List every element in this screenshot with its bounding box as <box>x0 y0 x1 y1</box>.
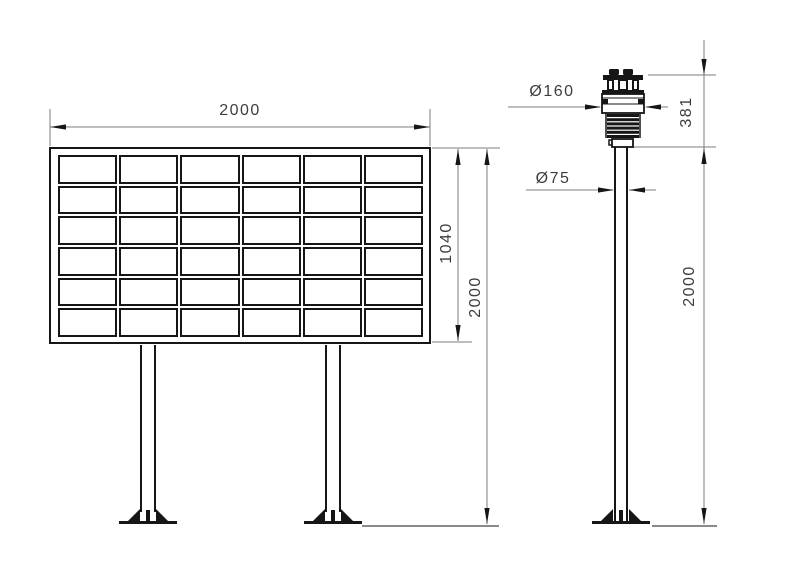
base-gusset <box>629 509 641 521</box>
panel-cell <box>303 247 362 276</box>
panel-cell <box>58 247 117 276</box>
panel-cell <box>58 308 117 337</box>
panel-cell <box>303 216 362 245</box>
panel-cell <box>303 308 362 337</box>
panel-cell <box>364 155 423 184</box>
panel-cell <box>242 186 301 215</box>
panel-grid <box>58 155 423 337</box>
panel-cell <box>364 186 423 215</box>
panel-cell <box>180 186 239 215</box>
base-gusset <box>341 509 353 521</box>
panel-cell <box>180 308 239 337</box>
panel-cell <box>180 216 239 245</box>
panel-cell <box>119 308 178 337</box>
panel-cell <box>119 155 178 184</box>
panel-cell <box>364 247 423 276</box>
weather-sensor <box>602 69 644 147</box>
dim-sensor-diameter: Ø160 <box>529 83 574 101</box>
base-gusset <box>313 509 325 521</box>
panel-cell <box>58 155 117 184</box>
panel-cell <box>303 186 362 215</box>
panel-cell <box>364 216 423 245</box>
panel-cell <box>242 216 301 245</box>
dim-screen-height: 1040 <box>438 222 456 264</box>
base-stub <box>331 510 335 522</box>
panel-cell <box>119 247 178 276</box>
panel-cell <box>58 216 117 245</box>
panel-cell <box>180 247 239 276</box>
panel-cell <box>242 247 301 276</box>
panel-cell <box>303 278 362 307</box>
base-gusset <box>156 509 168 521</box>
base-gusset <box>128 509 140 521</box>
panel-cell <box>58 186 117 215</box>
panel-cell <box>58 278 117 307</box>
panel-cell <box>364 278 423 307</box>
board-leg-left <box>140 345 156 512</box>
panel-cell <box>119 186 178 215</box>
pole <box>614 147 628 522</box>
panel-cell <box>303 155 362 184</box>
base-stub <box>619 510 623 522</box>
dim-pole-diameter: Ø75 <box>536 170 571 188</box>
panel-cell <box>242 155 301 184</box>
board-leg-right <box>325 345 341 512</box>
dim-board-total-height: 2000 <box>467 276 485 318</box>
panel-cell <box>364 308 423 337</box>
panel-cell <box>242 278 301 307</box>
base-gusset <box>601 509 613 521</box>
panel-cell <box>242 308 301 337</box>
panel-cell <box>119 278 178 307</box>
panel-cell <box>180 278 239 307</box>
panel-cell <box>180 155 239 184</box>
dim-sensor-height: 381 <box>678 96 696 127</box>
dim-board-width: 2000 <box>219 102 261 120</box>
base-stub <box>146 510 150 522</box>
panel-cell <box>119 216 178 245</box>
drawing-canvas: 2000 1040 2000 Ø160 381 Ø75 2000 <box>0 0 800 563</box>
dim-pole-height: 2000 <box>681 265 699 307</box>
